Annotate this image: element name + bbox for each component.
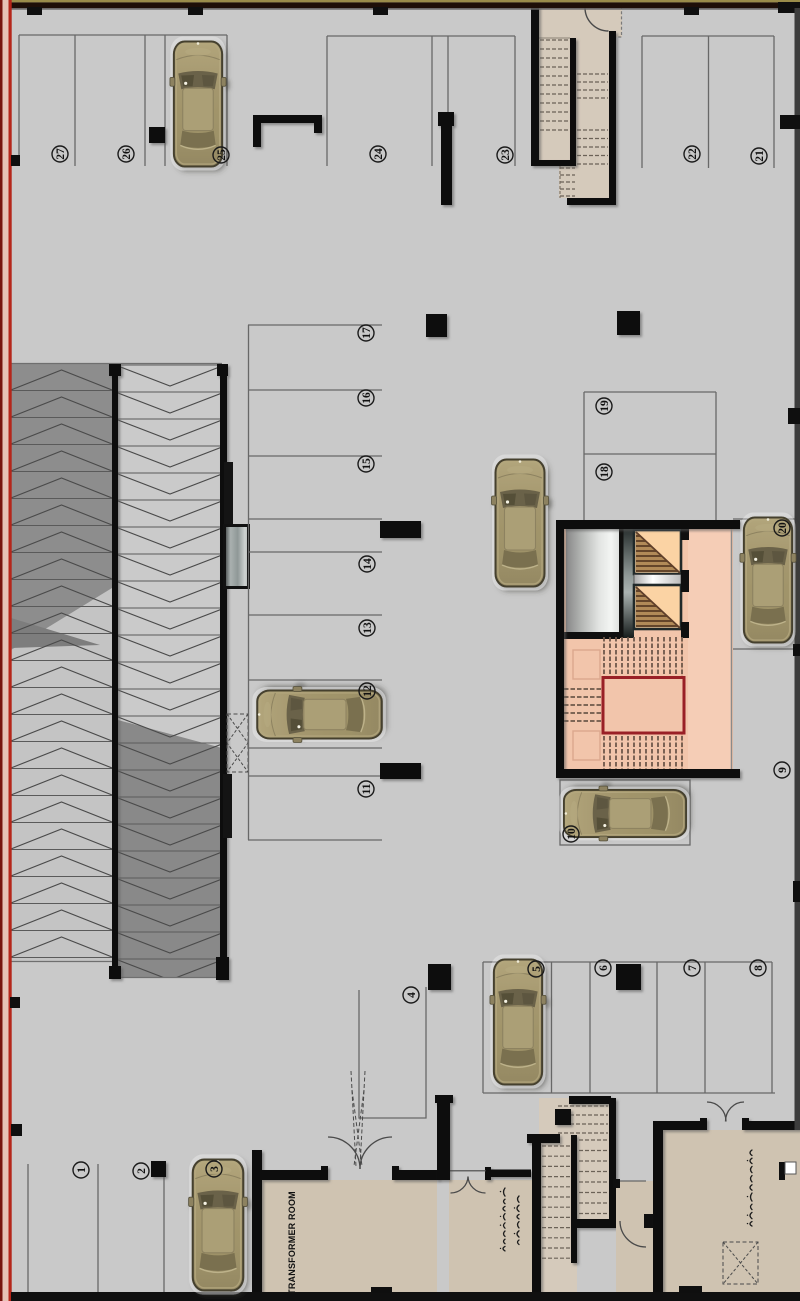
svg-text:2: 2 xyxy=(136,1168,148,1174)
svg-text:19: 19 xyxy=(599,400,611,412)
svg-text:15: 15 xyxy=(361,458,373,470)
svg-text:27: 27 xyxy=(55,148,67,160)
svg-text:6: 6 xyxy=(598,965,610,971)
svg-text:12: 12 xyxy=(362,685,374,697)
svg-text:7: 7 xyxy=(687,965,699,971)
svg-text:3: 3 xyxy=(209,1166,221,1172)
svg-text:22: 22 xyxy=(687,148,699,160)
svg-text:24: 24 xyxy=(373,148,385,160)
svg-text:13: 13 xyxy=(362,622,374,634)
svg-text:5: 5 xyxy=(531,966,543,972)
svg-text:25: 25 xyxy=(216,149,228,161)
svg-text:10: 10 xyxy=(566,828,578,840)
svg-text:11: 11 xyxy=(361,783,373,794)
svg-text:17: 17 xyxy=(361,327,373,339)
svg-text:21: 21 xyxy=(754,150,766,162)
svg-text:4: 4 xyxy=(406,992,418,998)
svg-text:1: 1 xyxy=(76,1167,88,1173)
svg-text:26: 26 xyxy=(121,148,133,160)
svg-text:18: 18 xyxy=(599,466,611,478)
svg-text:23: 23 xyxy=(500,149,512,161)
svg-text:8: 8 xyxy=(753,965,765,971)
svg-text:TRANSFORMER ROOM: TRANSFORMER ROOM xyxy=(287,1191,297,1295)
svg-text:14: 14 xyxy=(362,558,374,570)
svg-text:20: 20 xyxy=(777,522,789,534)
svg-text:16: 16 xyxy=(361,392,373,404)
svg-text:9: 9 xyxy=(777,767,789,773)
